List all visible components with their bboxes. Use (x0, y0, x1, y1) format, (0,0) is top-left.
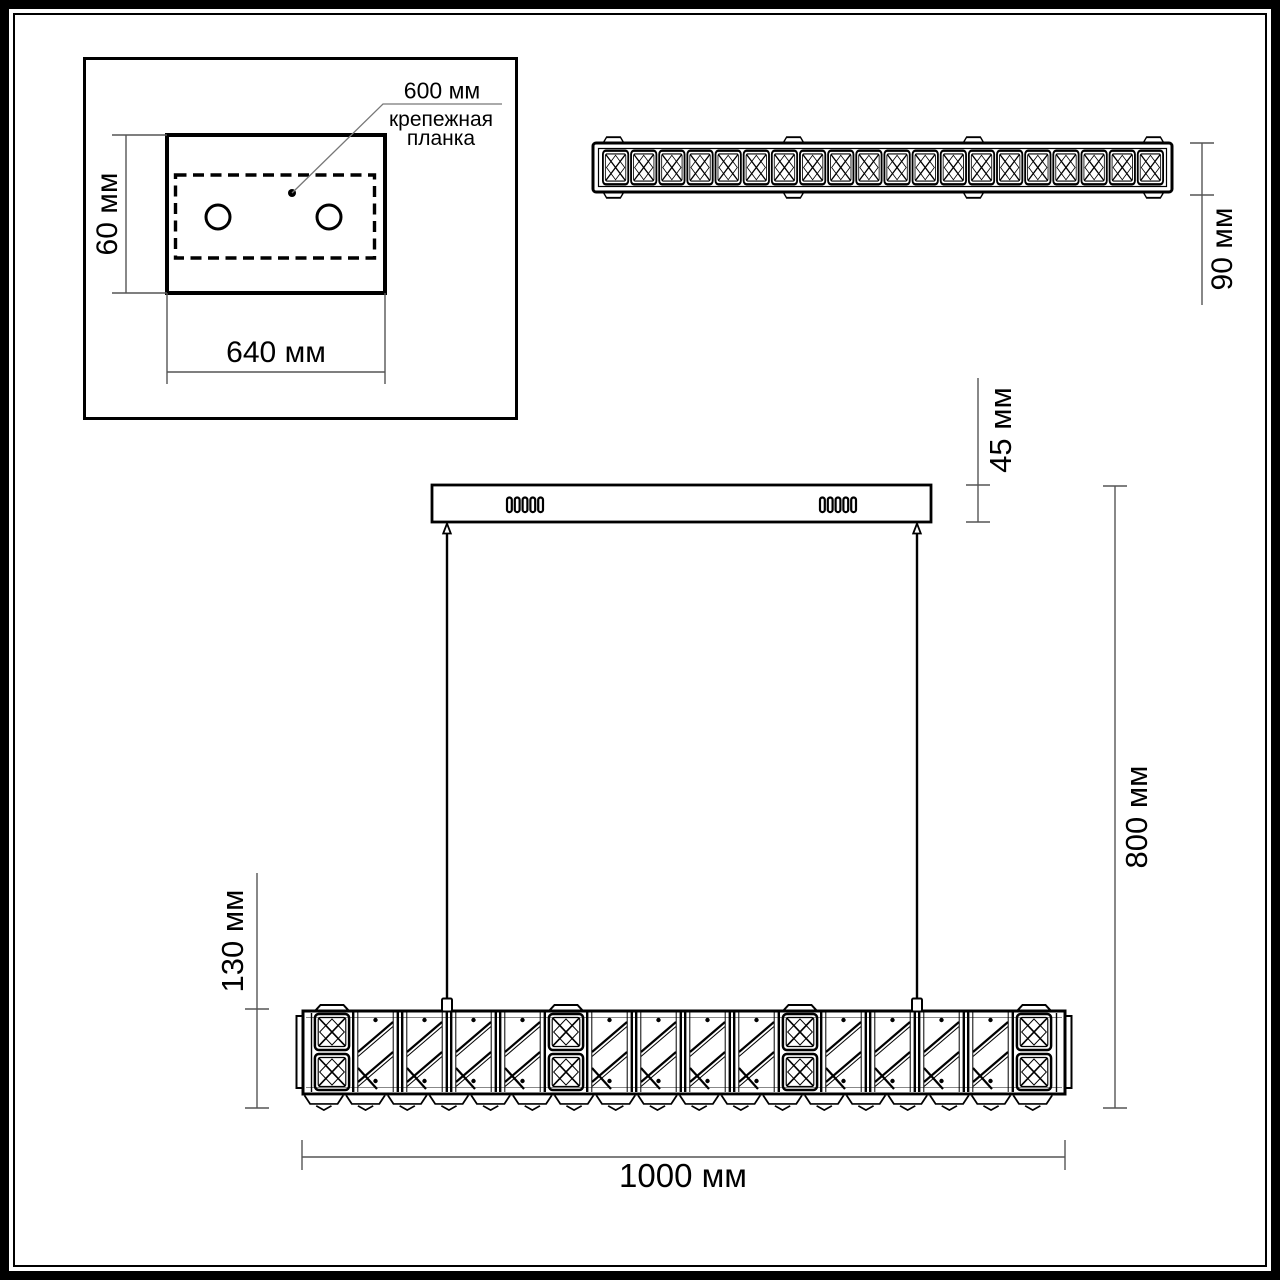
crystal-facet-cell (1025, 151, 1050, 185)
canopy-slot (523, 498, 528, 513)
crystal-petal (847, 1095, 886, 1110)
dim-640-label: 640 мм (226, 336, 326, 370)
canopy-slot (530, 498, 535, 513)
dim-130-label: 130 мм (215, 890, 251, 993)
crystal-petal (763, 1095, 802, 1110)
crystal-facet-cell (969, 151, 994, 185)
crystal-facet-cell (687, 151, 712, 185)
side-view-bar (593, 137, 1172, 198)
wire-ferrule-left (442, 999, 452, 1012)
front-view (297, 485, 1072, 1110)
crystal-petal (680, 1095, 719, 1110)
crystal-facet-cell (603, 151, 628, 185)
dim-45-label: 45 мм (983, 387, 1019, 473)
crystal-petal (722, 1095, 761, 1110)
crystal-facet-cell (716, 151, 741, 185)
crystal-bar-fringe (305, 1095, 1053, 1110)
crystal-facet-cell (1017, 1014, 1051, 1050)
crystal-facet-cell (549, 1054, 583, 1090)
crystal-facet-cell (941, 151, 966, 185)
technical-drawing-page: 600 мм крепежная планка 60 мм 640 мм 90 … (0, 0, 1280, 1280)
canopy-slot (828, 498, 833, 513)
crystal-facet-cell (884, 151, 909, 185)
crystal-petal (471, 1095, 510, 1110)
mount-bar-label: крепежная планка (389, 110, 493, 148)
crystal-facet-cell (997, 151, 1022, 185)
crystal-facet-cell (1081, 151, 1106, 185)
dim-800-label: 800 мм (1119, 766, 1155, 869)
canopy-slot (820, 498, 825, 513)
crystal-facet-cell (800, 151, 825, 185)
crystal-facet-cell (828, 151, 853, 185)
crystal-petal (388, 1095, 427, 1110)
crystal-facet-cell (659, 151, 684, 185)
canopy-slot (507, 498, 512, 513)
crystal-facet-cell (315, 1054, 349, 1090)
crystal-petal (555, 1095, 594, 1110)
crystal-facet-cell (315, 1014, 349, 1050)
wire-top-cone-right (913, 524, 921, 534)
dim-90-label: 90 мм (1206, 208, 1240, 291)
crystal-petal (930, 1095, 969, 1110)
dim-60-label: 60 мм (91, 173, 125, 256)
crystal-facet-cell (1138, 151, 1163, 185)
ceiling-canopy (432, 485, 931, 522)
crystal-facet-cell (744, 151, 769, 185)
suspension-wires (443, 524, 921, 1000)
dim-1000-label: 1000 мм (619, 1157, 747, 1195)
crystal-petal (513, 1095, 552, 1110)
drawing-canvas (0, 0, 1280, 1280)
wire-top-cone-left (443, 524, 451, 534)
wire-ferrule-right (912, 999, 922, 1012)
canopy-slot (843, 498, 848, 513)
crystal-petal (638, 1095, 677, 1110)
crystal-petal (888, 1095, 927, 1110)
crystal-facet-cell (1053, 151, 1078, 185)
canopy-slot (851, 498, 856, 513)
crystal-facet-cell (549, 1014, 583, 1050)
crystal-petal (1013, 1095, 1052, 1110)
dim-600-label: 600 мм (404, 78, 480, 105)
crystal-bar (297, 1005, 1072, 1110)
crystal-facet-cell (1110, 151, 1135, 185)
crystal-facet-cell (1017, 1054, 1051, 1090)
crystal-facet-cell (856, 151, 881, 185)
crystal-petal (805, 1095, 844, 1110)
crystal-petal (346, 1095, 385, 1110)
canopy-slot (538, 498, 543, 513)
canopy-slot (836, 498, 841, 513)
canopy-slot (515, 498, 520, 513)
crystal-facet-cell (783, 1014, 817, 1050)
crystal-facet-cell (783, 1054, 817, 1090)
crystal-facet-cell (913, 151, 938, 185)
crystal-petal (430, 1095, 469, 1110)
mounting-plate-outline (167, 135, 385, 293)
crystal-petal (596, 1095, 635, 1110)
crystal-facet-cell (772, 151, 797, 185)
crystal-facet-cell (631, 151, 656, 185)
crystal-petal (972, 1095, 1011, 1110)
crystal-petal (305, 1095, 344, 1110)
